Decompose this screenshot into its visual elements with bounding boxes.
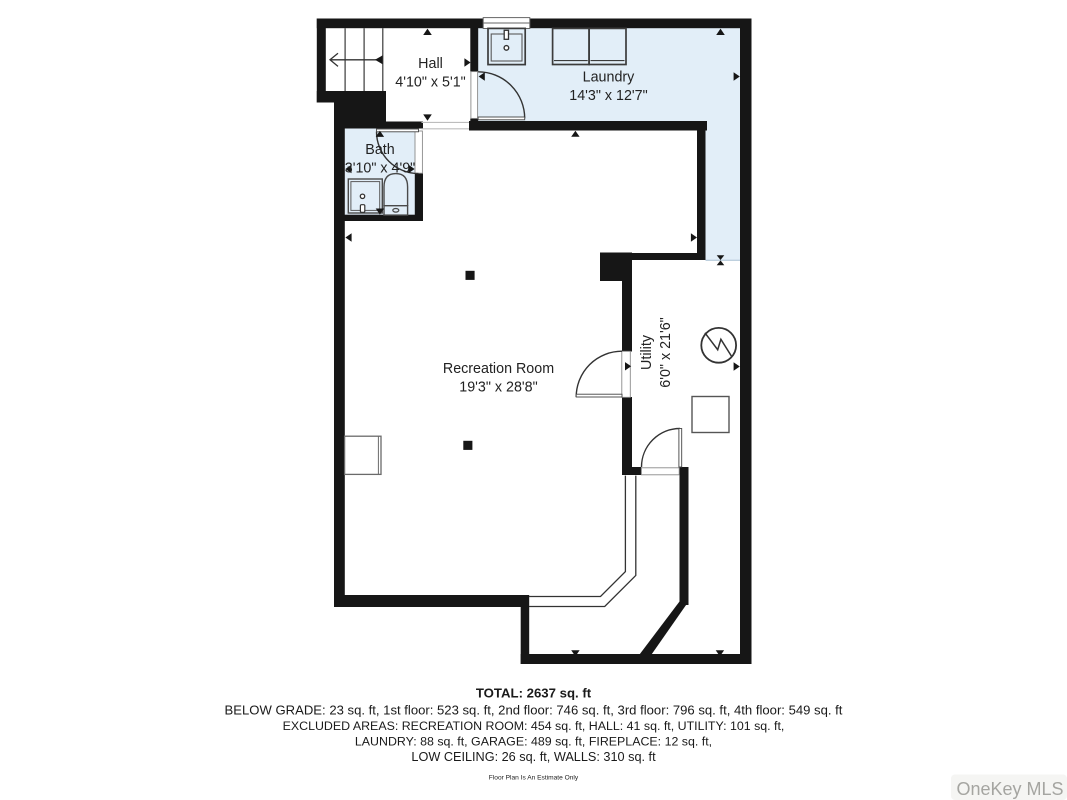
svg-text:LAUNDRY: 88 sq. ft, GARAGE: 48: LAUNDRY: 88 sq. ft, GARAGE: 489 sq. ft, … xyxy=(355,735,712,749)
svg-text:Laundry: Laundry xyxy=(583,70,636,86)
svg-text:Floor Plan Is An Estimate Only: Floor Plan Is An Estimate Only xyxy=(489,775,579,782)
svg-text:TOTAL: 2637 sq. ft: TOTAL: 2637 sq. ft xyxy=(476,686,592,701)
svg-text:14'3" x 12'7": 14'3" x 12'7" xyxy=(569,88,647,104)
svg-text:Bath: Bath xyxy=(365,142,394,158)
svg-text:LOW CEILING: 26 sq. ft, WALLS:: LOW CEILING: 26 sq. ft, WALLS: 310 sq. f… xyxy=(411,750,656,764)
svg-text:BELOW GRADE: 23 sq. ft, 1st fl: BELOW GRADE: 23 sq. ft, 1st floor: 523 s… xyxy=(225,703,843,718)
svg-text:3'10" x 4'9": 3'10" x 4'9" xyxy=(345,161,415,177)
svg-text:OneKey MLS: OneKey MLS xyxy=(956,779,1063,799)
svg-text:Hall: Hall xyxy=(418,56,443,72)
svg-text:EXCLUDED AREAS: RECREATION ROO: EXCLUDED AREAS: RECREATION ROOM: 454 sq.… xyxy=(283,719,785,733)
svg-text:6'0" x 21'6": 6'0" x 21'6" xyxy=(658,317,674,387)
svg-text:Utility: Utility xyxy=(639,334,655,370)
svg-text:4'10" x 5'1": 4'10" x 5'1" xyxy=(395,75,465,91)
svg-text:19'3" x 28'8": 19'3" x 28'8" xyxy=(459,379,537,395)
svg-text:Recreation Room: Recreation Room xyxy=(443,361,554,377)
